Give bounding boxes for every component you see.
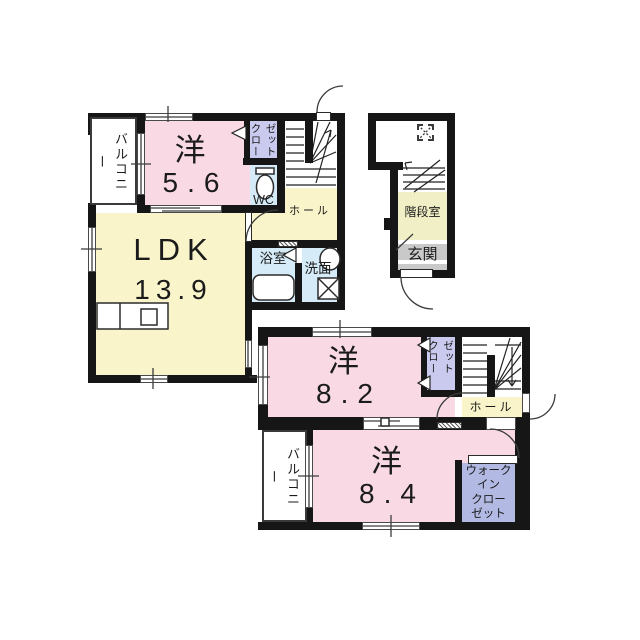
wic-line-4: ゼット [471, 507, 506, 521]
ldk-size: 13.9 [128, 275, 213, 306]
closet-1-label: クロー ゼット [251, 123, 276, 164]
closet-2-label: クロー ゼット [428, 340, 454, 387]
wic-line-1: ウォーク [466, 464, 512, 478]
balcony-2-label: バルコニー [270, 440, 302, 514]
ldk-label: LDK 13.9 [96, 216, 245, 322]
hall-2-label: ホール [462, 400, 522, 415]
hall-1-label: ホール [283, 204, 337, 218]
room-8-4-label: 洋 8.4 [313, 434, 462, 520]
closet-1-label-col2: ゼット [264, 123, 279, 164]
wc-label: WC [250, 193, 277, 209]
floorplan-canvas: バルコニー 洋 5.6 クロー ゼット WC ホール 浴室 洗面 LDK 13.… [0, 0, 640, 640]
closet-2-label-col1: クロー [426, 340, 441, 387]
room-5-6-size: 5.6 [154, 168, 229, 199]
wash-label: 洗面 [299, 261, 337, 277]
room-8-2-size: 8.2 [307, 379, 382, 410]
room-5-6-kanji: 洋 [175, 134, 208, 168]
wic-line-2: イン [477, 478, 500, 492]
ldk-kanji: LDK [126, 233, 214, 267]
room-8-2-label: 洋 8.2 [268, 340, 421, 414]
walk-in-closet-label: ウォーク イン クロー ゼット [462, 464, 515, 521]
closet-1-label-col1: クロー [249, 123, 264, 164]
room-5-6-label: 洋 5.6 [137, 124, 245, 208]
bath-label: 浴室 [252, 251, 294, 267]
entrance-label: 玄関 [398, 246, 447, 264]
closet-2-label-col2: ゼット [441, 340, 456, 387]
balcony-1-label: バルコニー [98, 126, 130, 198]
stair-room-label: 階段室 [398, 205, 447, 220]
room-8-2-kanji: 洋 [328, 345, 361, 379]
room-8-4-size: 8.4 [350, 479, 425, 510]
wic-line-3: クロー [471, 493, 506, 507]
room-8-4-kanji: 洋 [371, 445, 404, 479]
